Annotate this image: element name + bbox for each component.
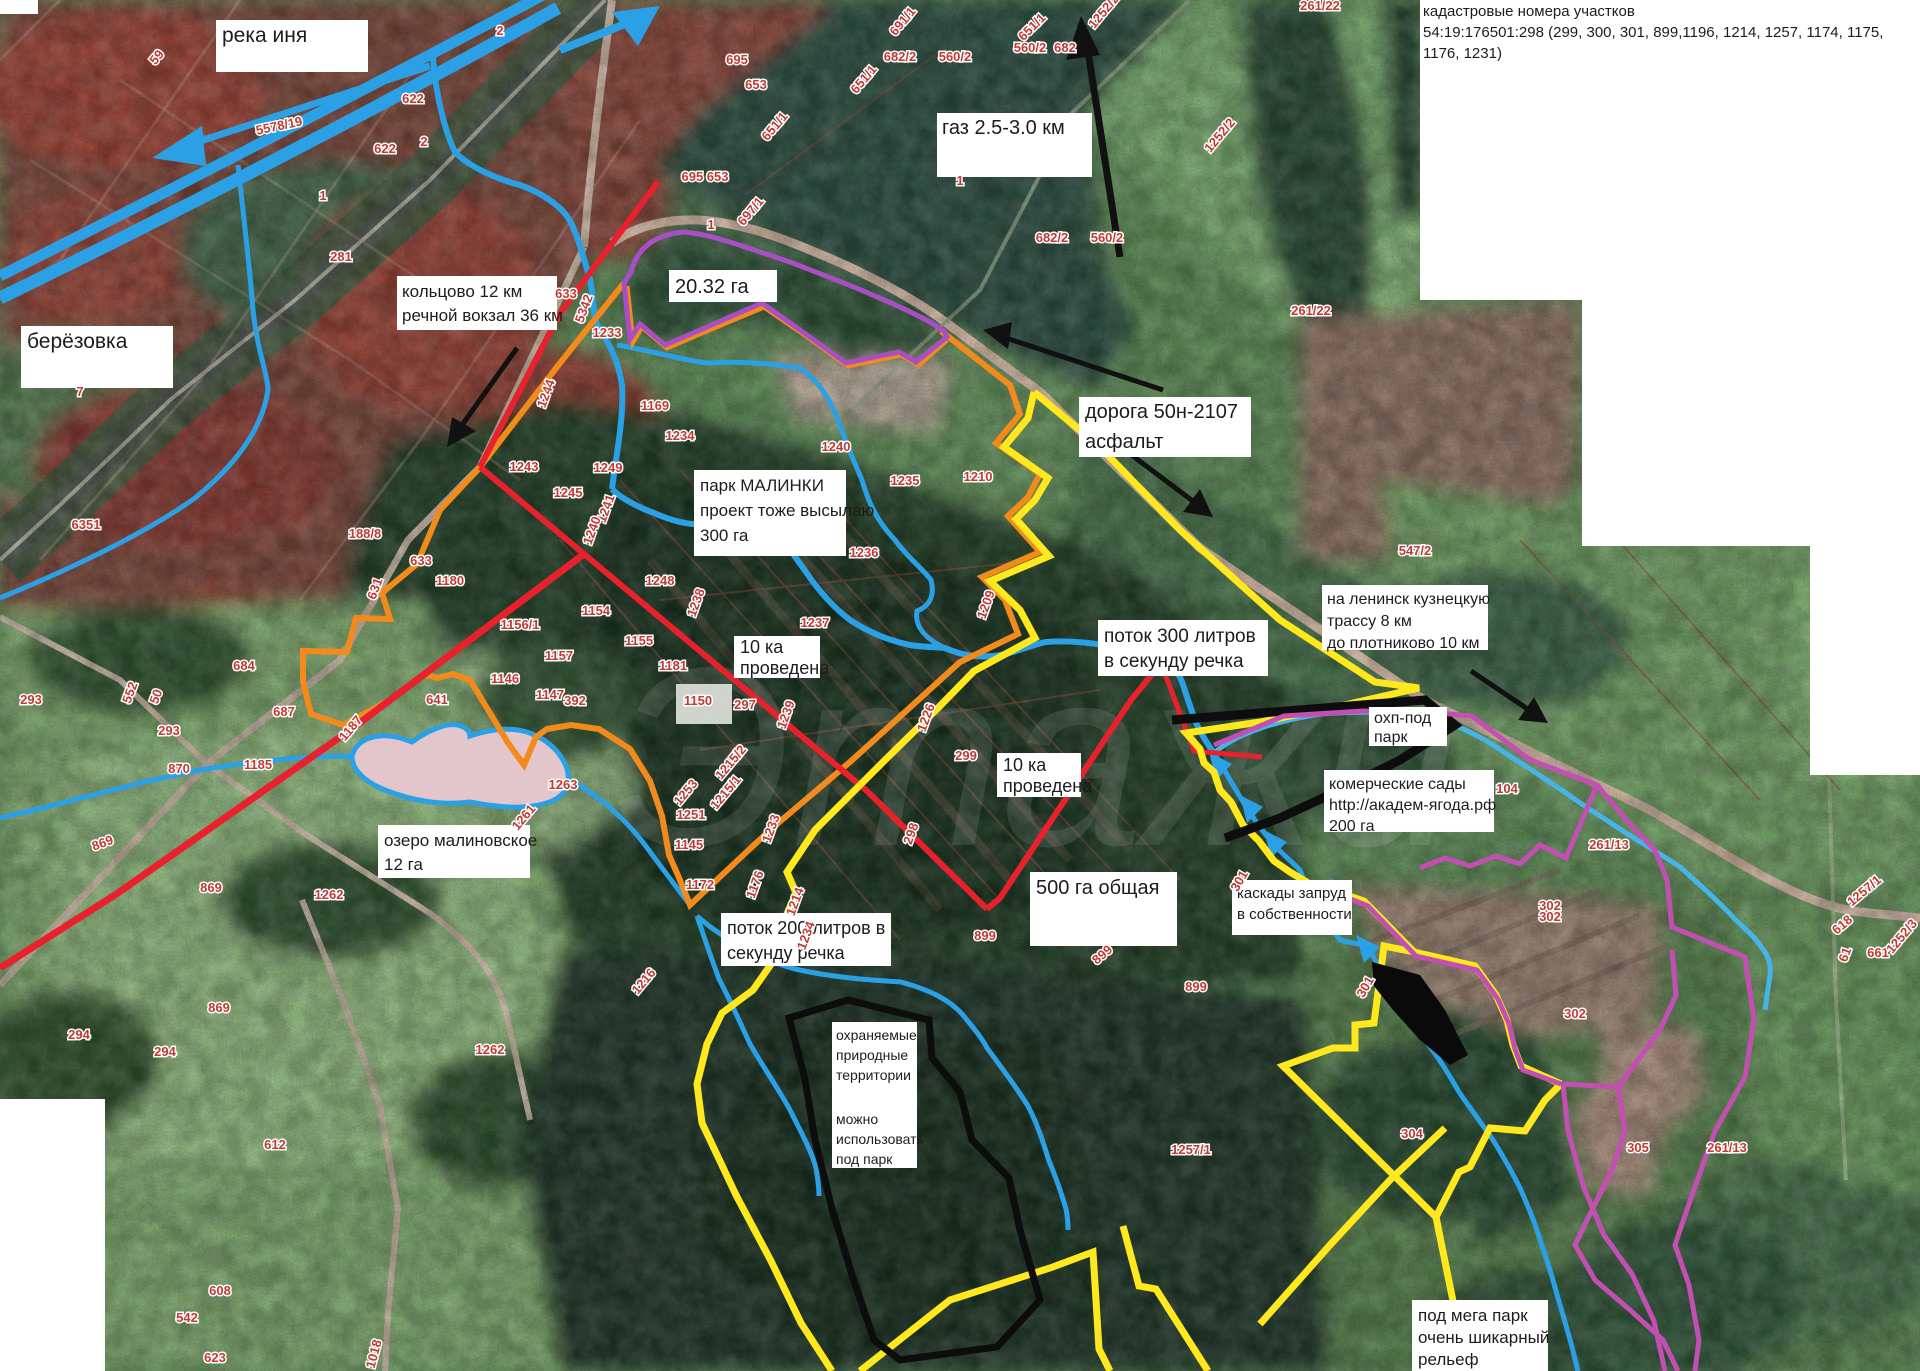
svg-text:на ленинск кузнецкую: на ленинск кузнецкую [1327, 591, 1490, 608]
svg-text:297: 297 [734, 697, 756, 712]
svg-text:261/13: 261/13 [1707, 1140, 1747, 1155]
svg-text:1234: 1234 [666, 428, 696, 443]
svg-text:54:19:176501:298 (299, 300, 30: 54:19:176501:298 (299, 300, 301, 899,119… [1423, 24, 1883, 41]
svg-text:1263: 1263 [549, 777, 578, 792]
svg-text:20.32 га: 20.32 га [675, 276, 749, 298]
svg-text:682: 682 [1054, 40, 1076, 55]
svg-text:633: 633 [555, 286, 577, 301]
svg-text:использовать: использовать [836, 1131, 924, 1147]
svg-text:622: 622 [374, 141, 396, 156]
svg-text:261/13: 261/13 [1589, 837, 1629, 852]
svg-text:1240: 1240 [822, 439, 851, 454]
svg-text:293: 293 [20, 692, 42, 707]
svg-text:в собственности: в собственности [1237, 906, 1352, 923]
svg-text:под мега парк: под мега парк [1418, 1306, 1528, 1325]
svg-text:1157: 1157 [545, 648, 573, 663]
svg-text:684: 684 [233, 658, 255, 673]
svg-text:305: 305 [1627, 1140, 1649, 1155]
svg-text:1236: 1236 [850, 545, 879, 560]
svg-text:1180: 1180 [436, 573, 464, 588]
svg-text:территории: территории [836, 1067, 911, 1083]
svg-text:проведена: проведена [740, 658, 830, 678]
svg-text:870: 870 [168, 761, 190, 776]
svg-text:2: 2 [496, 23, 503, 38]
svg-text:газ 2.5-3.0 км: газ 2.5-3.0 км [942, 117, 1065, 139]
svg-text:622: 622 [402, 91, 424, 106]
svg-text:очень шикарный: очень шикарный [1418, 1328, 1549, 1347]
svg-text:охп-под: охп-под [1374, 710, 1432, 727]
svg-text:речной вокзал 36 км: речной вокзал 36 км [402, 306, 563, 325]
svg-text:1245: 1245 [554, 485, 583, 500]
svg-text:7: 7 [76, 384, 83, 399]
svg-text:1: 1 [956, 173, 963, 188]
svg-text:547/2: 547/2 [1399, 543, 1432, 558]
svg-text:1155: 1155 [625, 633, 653, 648]
svg-text:проект тоже высылаю: проект тоже высылаю [700, 501, 874, 520]
svg-text:можно: можно [836, 1111, 878, 1127]
svg-text:1262: 1262 [476, 1042, 505, 1057]
svg-text:секунду речка: секунду речка [727, 943, 846, 963]
svg-text:1235: 1235 [891, 473, 920, 488]
svg-text:каскады запруд: каскады запруд [1237, 885, 1346, 902]
svg-text:рельеф: рельеф [1418, 1350, 1479, 1369]
svg-text:542: 542 [176, 1310, 198, 1325]
svg-text:охраняемые: охраняемые [836, 1027, 917, 1043]
svg-text:633: 633 [410, 553, 432, 568]
svg-text:асфальт: асфальт [1085, 431, 1163, 453]
svg-text:293: 293 [158, 723, 180, 738]
svg-text:500 га общая: 500 га общая [1036, 877, 1159, 899]
svg-text:682/2: 682/2 [1036, 230, 1069, 245]
svg-text:1181: 1181 [659, 658, 687, 673]
svg-text:1150: 1150 [684, 693, 712, 708]
svg-text:560/2: 560/2 [1014, 40, 1047, 55]
svg-text:294: 294 [68, 1027, 90, 1042]
svg-text:1248: 1248 [646, 573, 675, 588]
svg-text:899: 899 [1185, 979, 1207, 994]
svg-text:299: 299 [955, 748, 977, 763]
svg-text:1172: 1172 [686, 877, 714, 892]
svg-text:1176, 1231): 1176, 1231) [1423, 45, 1502, 62]
svg-text:берёзовка: берёзовка [27, 330, 128, 353]
svg-text:кадастровые номера участков: кадастровые номера участков [1423, 3, 1635, 20]
svg-text:1257/1: 1257/1 [1171, 1142, 1211, 1157]
svg-text:природные: природные [836, 1047, 908, 1063]
svg-text:869: 869 [200, 880, 222, 895]
svg-text:до плотниково 10 км: до плотниково 10 км [1327, 635, 1480, 652]
svg-text:188/8: 188/8 [349, 526, 382, 541]
svg-text:поток 300 литров: поток 300 литров [1104, 626, 1256, 647]
svg-text:200 га: 200 га [1329, 818, 1375, 835]
svg-text:http://академ-ягода.рф: http://академ-ягода.рф [1329, 797, 1496, 814]
svg-text:104: 104 [1496, 781, 1518, 796]
svg-text:проведена: проведена [1003, 776, 1093, 796]
svg-text:парк МАЛИНКИ: парк МАЛИНКИ [700, 476, 824, 495]
svg-text:1: 1 [319, 188, 326, 203]
svg-text:1185: 1185 [244, 757, 272, 772]
svg-text:1154: 1154 [582, 603, 611, 618]
svg-text:302: 302 [1564, 1006, 1586, 1021]
svg-text:под парк: под парк [836, 1151, 893, 1167]
svg-text:1243: 1243 [510, 459, 539, 474]
svg-text:трассу 8 км: трассу 8 км [1327, 613, 1412, 630]
svg-text:623: 623 [204, 1350, 226, 1365]
svg-text:682/2: 682/2 [884, 49, 917, 64]
svg-text:899: 899 [974, 928, 996, 943]
svg-text:281: 281 [330, 249, 352, 264]
svg-text:10 ка: 10 ка [740, 637, 784, 657]
svg-text:1237: 1237 [801, 615, 830, 630]
svg-text:река иня: река иня [222, 24, 307, 47]
svg-text:695 653: 695 653 [682, 169, 729, 184]
svg-text:608: 608 [209, 1283, 231, 1298]
svg-text:1156/1: 1156/1 [500, 617, 539, 632]
svg-text:1: 1 [707, 217, 714, 232]
svg-text:1210: 1210 [964, 469, 993, 484]
svg-text:653: 653 [745, 77, 767, 92]
svg-text:1251: 1251 [677, 807, 706, 822]
svg-text:612: 612 [264, 1137, 286, 1152]
svg-text:парк: парк [1374, 729, 1408, 746]
svg-text:дорога 50н-2107: дорога 50н-2107 [1085, 401, 1238, 423]
svg-text:294: 294 [154, 1044, 176, 1059]
svg-text:в секунду речка: в секунду речка [1104, 651, 1244, 672]
svg-text:2: 2 [420, 134, 427, 149]
svg-text:695: 695 [726, 52, 748, 67]
svg-text:641: 641 [426, 692, 448, 707]
svg-text:озеро малиновское: озеро малиновское [384, 831, 537, 850]
svg-text:560/2: 560/2 [1091, 230, 1124, 245]
svg-text:869: 869 [208, 1000, 230, 1015]
svg-text:10 ка: 10 ка [1003, 755, 1047, 775]
svg-text:560/2: 560/2 [939, 49, 972, 64]
svg-text:1146: 1146 [491, 671, 519, 686]
svg-text:302: 302 [1539, 898, 1561, 913]
svg-text:392: 392 [564, 693, 586, 708]
svg-text:кольцово 12 км: кольцово 12 км [402, 282, 522, 301]
svg-text:304: 304 [1401, 1126, 1423, 1141]
svg-text:1249: 1249 [594, 460, 623, 475]
svg-text:12 га: 12 га [384, 855, 423, 874]
svg-text:1262: 1262 [315, 887, 344, 902]
svg-text:6351: 6351 [72, 517, 101, 532]
svg-text:1169: 1169 [641, 398, 669, 413]
svg-text:261/22: 261/22 [1300, 0, 1340, 13]
svg-text:1233: 1233 [593, 325, 622, 340]
svg-text:комерческие сады: комерческие сады [1329, 776, 1466, 793]
svg-text:261/22: 261/22 [1291, 303, 1331, 318]
svg-text:687: 687 [273, 704, 295, 719]
svg-text:1147: 1147 [536, 687, 564, 702]
svg-text:300 га: 300 га [700, 526, 749, 545]
svg-text:1145: 1145 [675, 837, 703, 852]
